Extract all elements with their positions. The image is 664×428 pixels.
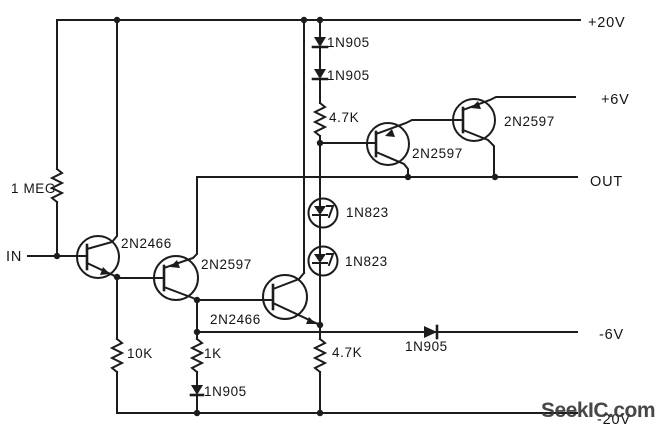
rail-label-plus6: +6V [601,92,630,108]
wire-q2-collector [164,287,197,339]
diode-label-1n905-3: 1N905 [204,384,247,399]
wire-q5-collector [463,130,494,177]
zener-label-1n823-1: 1N823 [346,205,389,220]
transistor-label-q1: 2N2466 [121,236,172,251]
schematic-canvas: IN +20V +6V OUT -6V -20V 1 MEG 10K 1K 4.… [0,0,664,428]
diode-label-1n905-4: 1N905 [405,339,448,354]
diode-label-1n905-1: 1N905 [327,35,370,50]
zener-1n823-2 [309,247,338,276]
zener-label-1n823-2: 1N823 [345,254,388,269]
resistor-4.7k-bottom [315,339,325,372]
q1-emitter-arrow [100,267,110,275]
resistor-1k [192,339,202,372]
rail-label-plus20: +20V [588,15,625,31]
rail-label-minus6: -6V [599,327,624,343]
resistor-label-1k: 1K [204,346,222,361]
transistor-label-q3: 2N2466 [210,312,261,327]
circuit-schematic-page: IN +20V +6V OUT -6V -20V 1 MEG 10K 1K 4.… [0,0,664,428]
diode-1n905-1 [313,37,327,47]
resistor-label-4.7k-top: 4.7K [329,110,359,125]
resistor-10k [112,339,122,372]
transistor-label-q4: 2N2597 [412,146,463,161]
in-label: IN [6,249,22,265]
junction-dots [54,17,498,416]
resistor-label-10k: 10K [127,346,153,361]
transistor-label-q5: 2N2597 [504,114,555,129]
resistor-label-1meg: 1 MEG [11,181,56,196]
rail-label-out: OUT [590,174,623,190]
resistor-4.7k-top [315,103,325,136]
zener-1n823-1 [309,199,338,228]
transistor-label-q2: 2N2597 [201,257,252,272]
wire-q1-collector [87,20,117,249]
diode-label-1n905-2: 1N905 [327,68,370,83]
diode-1n905-2 [313,69,327,79]
q2-emitter-arrow [170,260,180,268]
wires [28,20,580,413]
resistor-label-4.7k-bottom: 4.7K [332,345,362,360]
diode-1n905-4 [424,326,437,338]
wire-q2-emitter-to-out [164,177,197,268]
q5-emitter-arrow [471,101,481,109]
diode-1n905-3 [191,385,203,395]
seekic-watermark: SeekIC.com [541,399,655,422]
